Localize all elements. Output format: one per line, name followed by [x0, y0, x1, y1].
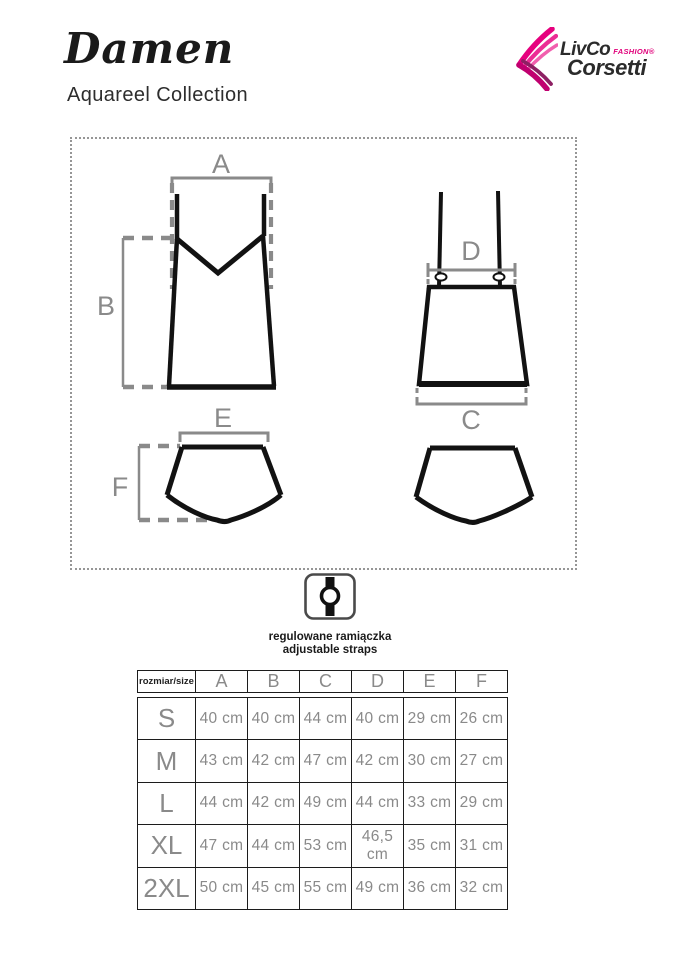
- size-table-header-row: rozmiar/size A B C D E F: [138, 671, 508, 693]
- measurement-value: 40 cm: [196, 698, 248, 740]
- straps-note-english: adjustable straps: [269, 644, 392, 657]
- column-header-a: A: [196, 671, 248, 693]
- measurement-value: 35 cm: [404, 825, 456, 867]
- measurement-value: 29 cm: [404, 698, 456, 740]
- column-header-d: D: [352, 671, 404, 693]
- measurement-value: 44 cm: [352, 782, 404, 824]
- size-label: XL: [138, 825, 196, 867]
- measurement-value: 42 cm: [352, 740, 404, 782]
- measurement-value: 42 cm: [248, 782, 300, 824]
- measurement-value: 40 cm: [248, 698, 300, 740]
- measurement-value: 30 cm: [404, 740, 456, 782]
- column-header-c: C: [300, 671, 352, 693]
- label-c: C: [461, 405, 481, 435]
- table-row-s: S 40 cm 40 cm 44 cm 40 cm 29 cm 26 cm: [138, 698, 508, 740]
- size-label: 2XL: [138, 867, 196, 909]
- measurement-value: 44 cm: [300, 698, 352, 740]
- straps-note-polish: regulowane ramiączka: [269, 631, 392, 644]
- size-label: M: [138, 740, 196, 782]
- adjustable-strap-icon: [304, 573, 356, 620]
- measurement-value: 45 cm: [248, 867, 300, 909]
- camisole-back-drawing: D C: [417, 191, 527, 435]
- size-label: S: [138, 698, 196, 740]
- measurement-value: 40 cm: [352, 698, 404, 740]
- measurement-value: 44 cm: [248, 825, 300, 867]
- label-d: D: [461, 236, 481, 266]
- measurement-value: 26 cm: [456, 698, 508, 740]
- table-row-xl: XL 47 cm 44 cm 53 cm 46,5 cm 35 cm 31 cm: [138, 825, 508, 867]
- column-header-e: E: [404, 671, 456, 693]
- measurement-value: 33 cm: [404, 782, 456, 824]
- garment-measurement-drawing: A B D: [70, 137, 577, 570]
- measurement-value: 31 cm: [456, 825, 508, 867]
- logo-wing-icon: [512, 27, 558, 91]
- measurement-value: 53 cm: [300, 825, 352, 867]
- collection-subtitle: Aquareel Collection: [67, 84, 248, 107]
- measurement-value: 27 cm: [456, 740, 508, 782]
- logo-brand-name-bottom: Corsetti: [560, 57, 655, 79]
- measurement-value: 47 cm: [300, 740, 352, 782]
- table-row-m: M 43 cm 42 cm 47 cm 42 cm 30 cm 27 cm: [138, 740, 508, 782]
- column-header-f: F: [456, 671, 508, 693]
- size-table-header: rozmiar/size A B C D E F: [137, 670, 508, 693]
- label-f: F: [112, 472, 129, 502]
- brand-logo: LivCo FASHION® Corsetti: [512, 26, 662, 92]
- label-b: B: [97, 291, 115, 321]
- table-row-2xl: 2XL 50 cm 45 cm 55 cm 49 cm 36 cm 32 cm: [138, 867, 508, 909]
- measurement-value: 44 cm: [196, 782, 248, 824]
- measurement-value: 36 cm: [404, 867, 456, 909]
- measurement-value: 32 cm: [456, 867, 508, 909]
- panties-back-drawing: [416, 448, 532, 523]
- size-table: rozmiar/size A B C D E F S 40 cm 40 cm 4…: [137, 670, 508, 910]
- measurement-value: 43 cm: [196, 740, 248, 782]
- camisole-front-drawing: A B: [97, 149, 276, 387]
- label-e: E: [214, 403, 232, 433]
- measurement-value: 50 cm: [196, 867, 248, 909]
- label-a: A: [212, 149, 230, 179]
- column-header-b: B: [248, 671, 300, 693]
- measurement-value: 49 cm: [352, 867, 404, 909]
- measurement-value: 42 cm: [248, 740, 300, 782]
- adjustable-straps-note: regulowane ramiączka adjustable straps: [0, 573, 660, 657]
- logo-text: LivCo FASHION® Corsetti: [560, 40, 655, 79]
- measurement-value: 29 cm: [456, 782, 508, 824]
- size-label: L: [138, 782, 196, 824]
- table-row-l: L 44 cm 42 cm 49 cm 44 cm 33 cm 29 cm: [138, 782, 508, 824]
- measurement-value: 49 cm: [300, 782, 352, 824]
- panties-front-drawing: E F: [112, 403, 281, 522]
- measurement-value: 46,5 cm: [352, 825, 404, 867]
- corner-cell: rozmiar/size: [138, 671, 196, 693]
- measurement-value: 55 cm: [300, 867, 352, 909]
- measurement-diagram-box: A B D: [70, 137, 577, 570]
- measurement-value: 47 cm: [196, 825, 248, 867]
- size-table-body: S 40 cm 40 cm 44 cm 40 cm 29 cm 26 cm M …: [137, 697, 508, 910]
- page-title: Damen: [64, 24, 234, 73]
